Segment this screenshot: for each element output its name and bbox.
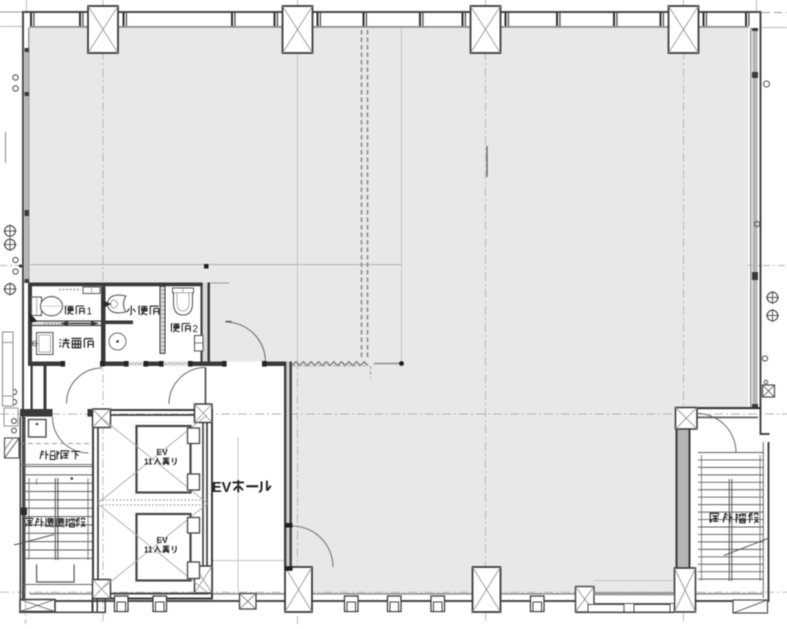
svg-text:11: 11 [144,458,153,467]
svg-text:11: 11 [144,546,153,555]
svg-text:EV: EV [212,480,232,496]
svg-text:2: 2 [193,324,199,335]
svg-text:EV: EV [157,447,169,457]
svg-text:EV: EV [157,535,169,545]
svg-text:1: 1 [87,307,93,318]
